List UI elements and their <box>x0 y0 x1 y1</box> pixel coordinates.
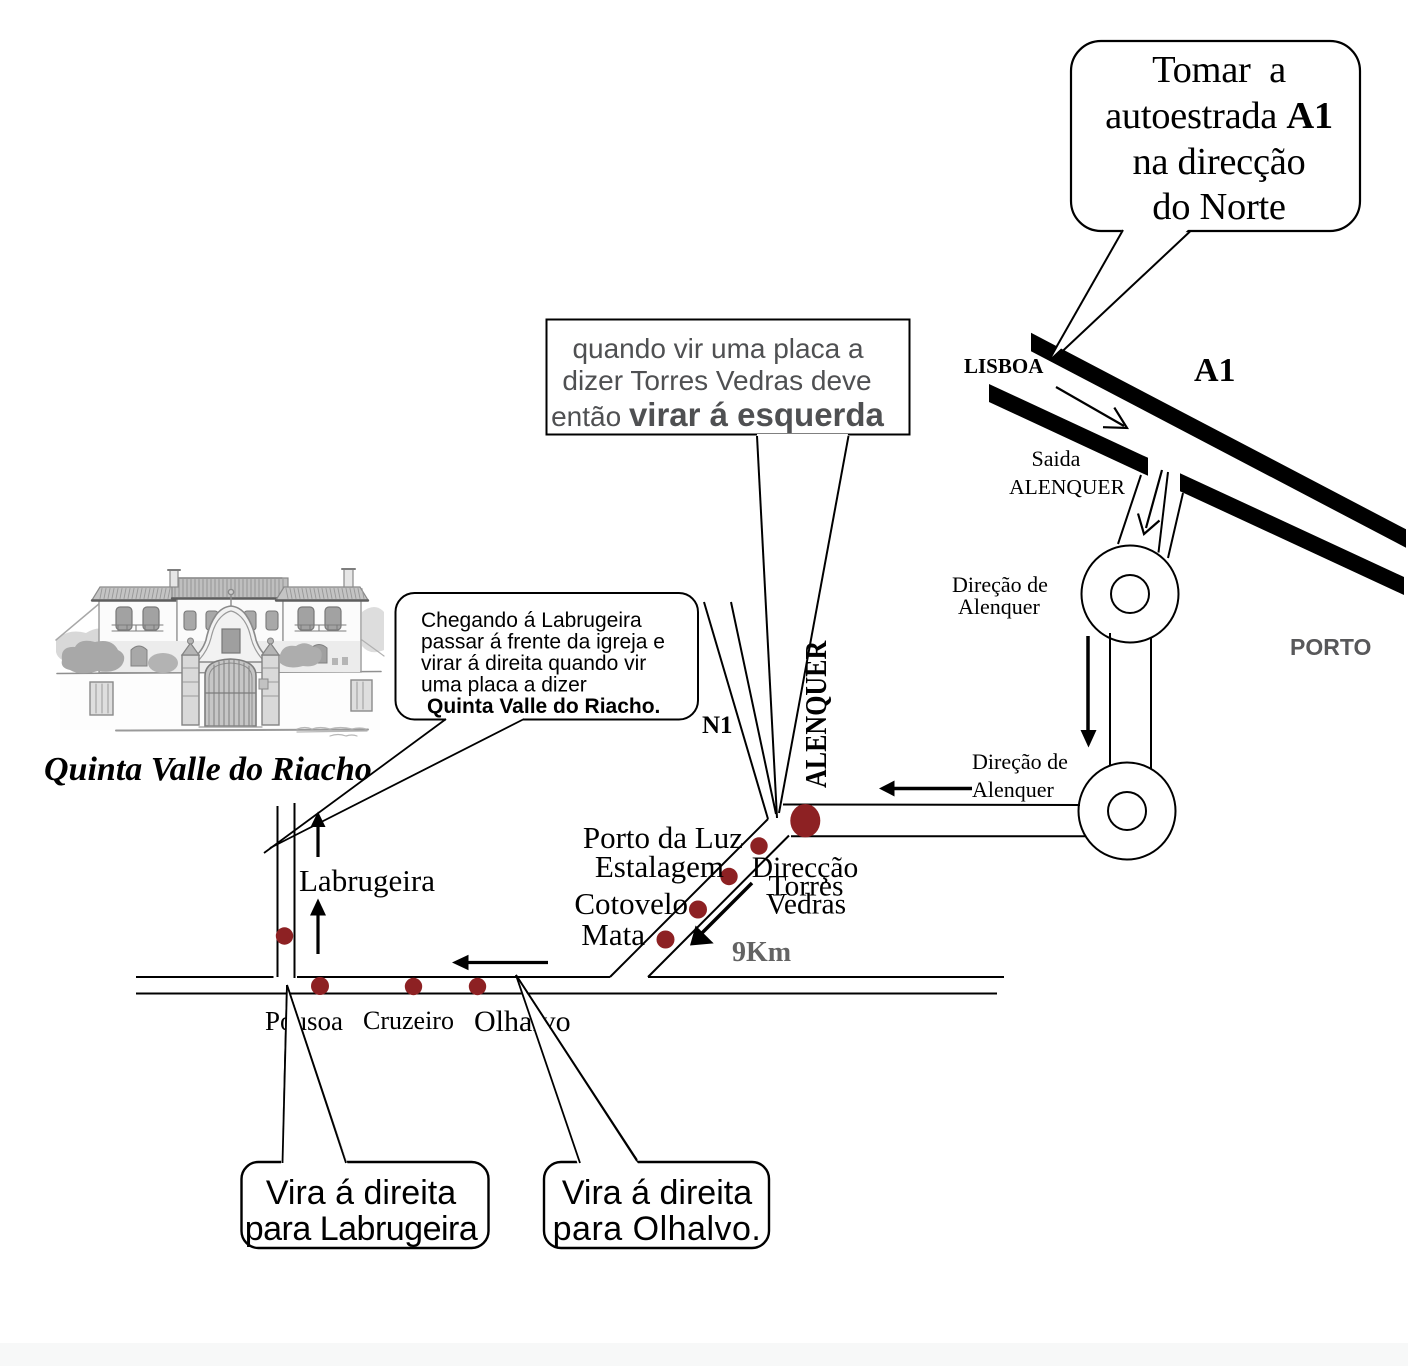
svg-text:Direção de: Direção de <box>972 749 1068 774</box>
svg-text:N1: N1 <box>702 712 733 739</box>
svg-text:uma placa a dizer: uma placa a dizer <box>421 674 587 697</box>
svg-text:Alenquer: Alenquer <box>958 594 1041 619</box>
svg-text:para Olhalvo.: para Olhalvo. <box>553 1210 762 1248</box>
svg-text:Vira á direita: Vira á direita <box>266 1174 456 1212</box>
svg-text:para Labrugeira: para Labrugeira <box>245 1210 478 1248</box>
svg-text:Pousoa: Pousoa <box>265 1006 343 1036</box>
svg-text:dizer Torres Vedras deve: dizer Torres Vedras deve <box>562 365 871 396</box>
svg-text:Quinta Valle do Riacho.: Quinta Valle do Riacho. <box>427 695 660 718</box>
svg-text:Labrugeira: Labrugeira <box>299 863 435 898</box>
svg-text:Chegando á Labrugeira: Chegando á Labrugeira <box>421 609 642 632</box>
svg-text:ALENQUER: ALENQUER <box>1009 475 1126 499</box>
svg-text:Olhalvo: Olhalvo <box>474 1005 571 1038</box>
svg-text:quando vir uma placa a: quando vir uma placa a <box>572 333 864 364</box>
svg-text:Quinta Valle do Riacho: Quinta Valle do Riacho <box>44 751 372 788</box>
svg-text:autoestrada A1: autoestrada A1 <box>1105 95 1333 137</box>
svg-text:LISBOA: LISBOA <box>964 354 1044 378</box>
svg-text:Estalagem: Estalagem <box>595 849 724 884</box>
svg-text:Mata: Mata <box>581 917 645 952</box>
svg-text:A1: A1 <box>1194 352 1236 389</box>
svg-text:na direcção: na direcção <box>1132 141 1305 183</box>
svg-text:passar á frente da igreja e: passar á frente da igreja e <box>421 631 665 654</box>
svg-text:do Norte: do Norte <box>1152 186 1285 228</box>
svg-text:Alenquer: Alenquer <box>972 777 1055 802</box>
svg-text:Vedras: Vedras <box>766 889 846 921</box>
svg-text:Cruzeiro: Cruzeiro <box>363 1006 454 1035</box>
svg-text:virar á direita quando vir: virar á direita quando vir <box>421 652 646 675</box>
svg-text:então virar á esquerda: então virar á esquerda <box>551 396 884 433</box>
svg-text:ALENQUER: ALENQUER <box>800 640 833 788</box>
svg-text:Saida: Saida <box>1032 446 1081 471</box>
svg-text:Cotovelo: Cotovelo <box>574 886 688 921</box>
svg-text:9Km: 9Km <box>732 937 791 968</box>
svg-text:Tomar a: Tomar a <box>1152 49 1286 91</box>
svg-text:Vira á direita: Vira á direita <box>562 1174 752 1212</box>
svg-text:PORTO: PORTO <box>1290 634 1371 660</box>
